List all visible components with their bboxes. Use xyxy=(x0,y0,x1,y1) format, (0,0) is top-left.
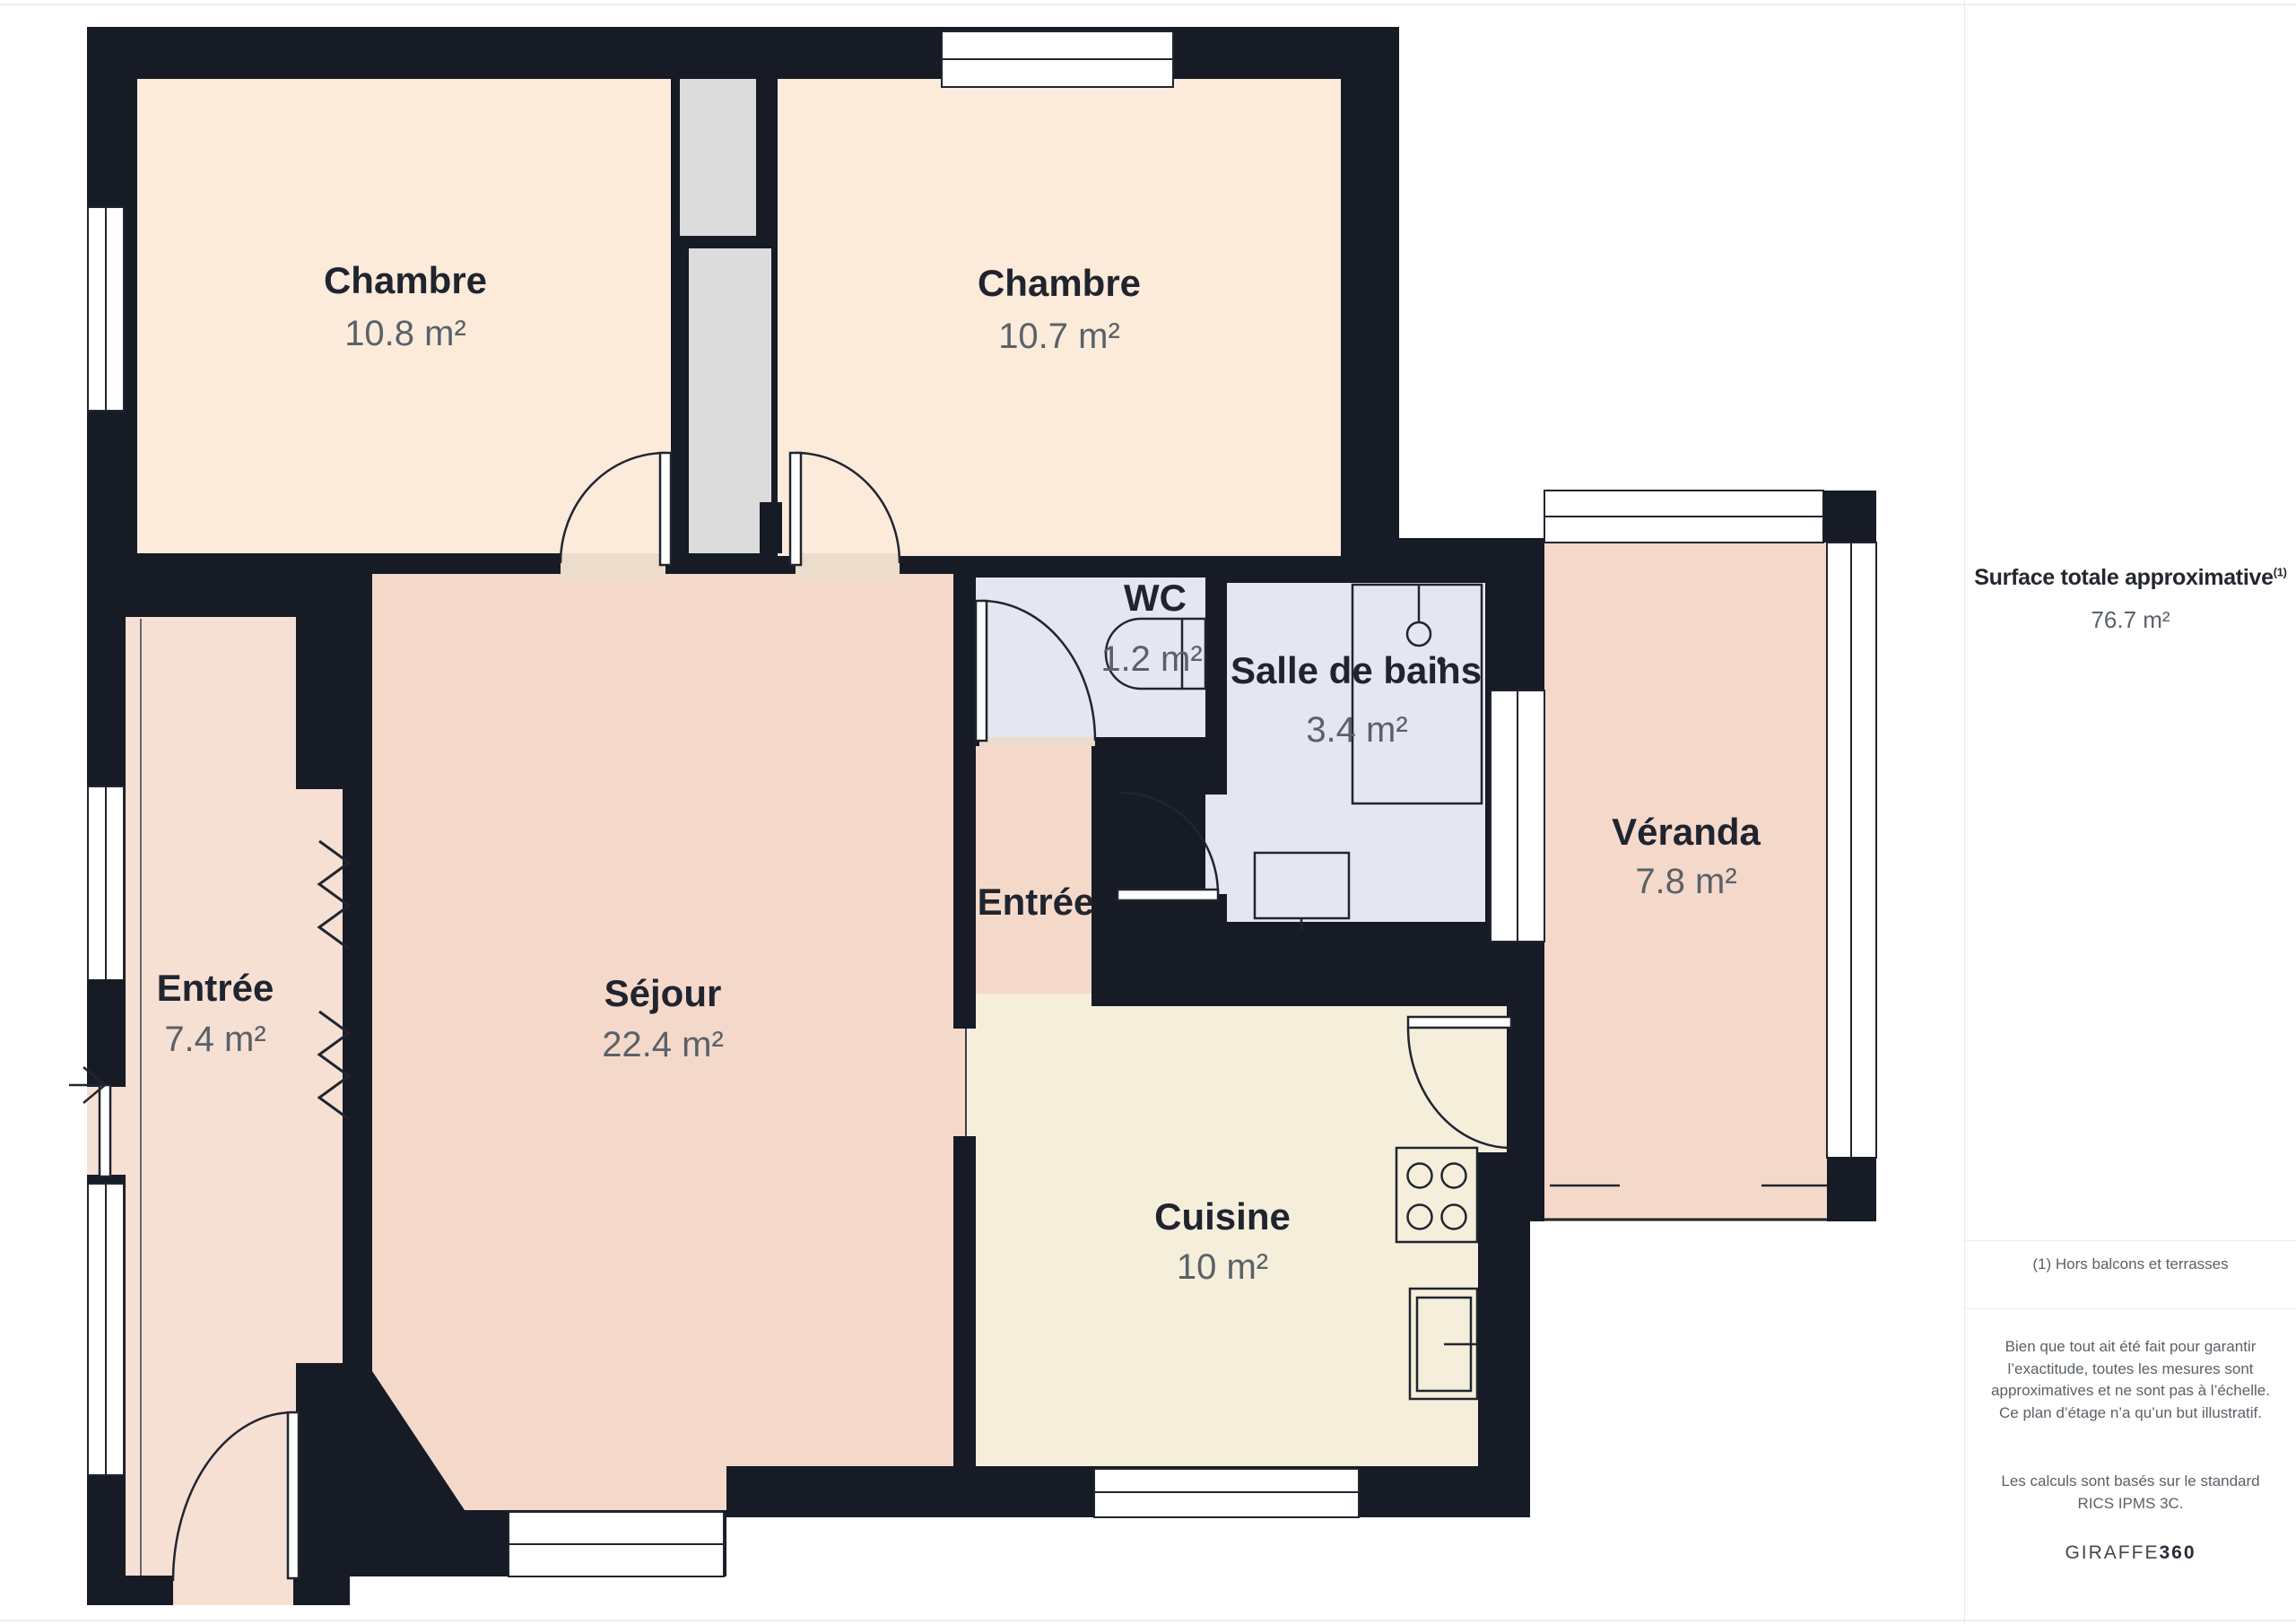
room-area: 10 m² xyxy=(1177,1247,1268,1287)
room-label: Entrée xyxy=(157,967,274,1009)
room-label: Entrée xyxy=(978,881,1095,923)
window xyxy=(942,31,1173,87)
window xyxy=(87,786,126,993)
door-leaf xyxy=(1118,890,1218,900)
room-label: Cuisine xyxy=(1154,1195,1291,1238)
door-leaf xyxy=(100,1085,110,1177)
door-leaf xyxy=(288,1412,299,1578)
room-label: Véranda xyxy=(1612,811,1761,853)
room-entree-gauche-floor xyxy=(296,789,343,1363)
surface-total-title: Surface totale approximative(1) xyxy=(1965,565,2296,591)
room-label: Séjour xyxy=(604,972,722,1014)
wall-segment xyxy=(293,538,372,789)
footnote: (1) Hors balcons et terrasses xyxy=(1965,1255,2296,1273)
room-label: Salle de bains xyxy=(1231,649,1482,691)
threshold xyxy=(979,737,1095,746)
outside xyxy=(1530,1221,1552,1517)
door-leaf xyxy=(660,453,671,565)
window xyxy=(1491,690,1544,942)
door-leaf xyxy=(976,601,987,741)
room-salle-de-bains-floor xyxy=(1227,583,1485,922)
doorway-floor xyxy=(173,1489,293,1605)
floor-plan: Chambre 10.8 m² Chambre 10.7 m² WC 1.2 m… xyxy=(0,0,1964,1624)
disclaimer-text: Bien que tout ait été fait pour garantir… xyxy=(1965,1336,2296,1424)
wall-segment xyxy=(87,27,1399,79)
room-label: Chambre xyxy=(324,259,487,301)
stove-fixture xyxy=(1396,1148,1477,1242)
window xyxy=(1827,543,1876,1221)
standard-note: Les calculs sont basés sur le standard R… xyxy=(1965,1471,2296,1515)
room-area: 10.7 m² xyxy=(998,317,1120,356)
wall-segment xyxy=(293,1363,350,1605)
door-leaf xyxy=(790,453,801,565)
room-area: 7.4 m² xyxy=(164,1020,265,1059)
outside xyxy=(726,1517,976,1576)
divider xyxy=(1965,1308,2296,1309)
giraffe360-logo: GIRAFFE360 xyxy=(1965,1542,2296,1564)
title-superscript: (1) xyxy=(2274,566,2287,579)
door-entrance-left xyxy=(100,1085,110,1177)
closet-floor xyxy=(680,79,756,236)
room-entree-milieu-floor xyxy=(976,746,1091,994)
surface-total-value: 76.7 m² xyxy=(1965,606,2296,634)
room-label: WC xyxy=(1124,577,1187,619)
passage-floor xyxy=(953,1029,966,1136)
passage-floor xyxy=(966,1029,976,1136)
brand-suffix: 360 xyxy=(2159,1542,2196,1563)
window xyxy=(88,1184,124,1475)
room-area: 7.8 m² xyxy=(1635,862,1736,901)
room-entree-gauche-floor xyxy=(126,617,296,1576)
wall-segment xyxy=(760,502,782,553)
room-area: 22.4 m² xyxy=(602,1025,724,1064)
door-leaf xyxy=(1408,1017,1511,1028)
divider xyxy=(1965,1240,2296,1241)
room-area: 10.8 m² xyxy=(344,314,466,353)
closet-floor xyxy=(689,248,771,553)
threshold xyxy=(796,553,900,578)
room-label: Chambre xyxy=(978,262,1141,304)
window xyxy=(509,1512,724,1576)
room-area: 3.4 m² xyxy=(1306,710,1407,750)
threshold xyxy=(561,553,665,578)
wall-segment xyxy=(1341,79,1399,583)
room-area: 1.2 m² xyxy=(1100,639,1202,679)
window xyxy=(1094,1469,1359,1517)
window xyxy=(88,207,124,411)
window xyxy=(1544,491,1876,543)
summary-sidebar: Surface totale approximative(1) 76.7 m² … xyxy=(1964,0,2296,1624)
floorplan-page: Chambre 10.8 m² Chambre 10.7 m² WC 1.2 m… xyxy=(0,0,2296,1624)
brand-name: GIRAFFE xyxy=(2065,1542,2159,1563)
